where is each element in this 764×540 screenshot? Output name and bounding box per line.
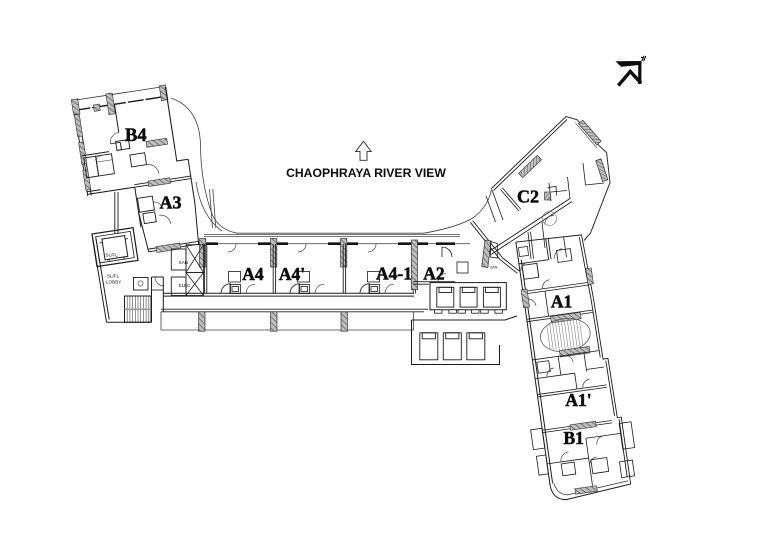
svg-text:SL/FL: SL/FL <box>107 274 120 279</box>
svg-text:ELEC: ELEC <box>179 283 192 288</box>
svg-text:SAN: SAN <box>179 260 188 265</box>
svg-text:SAN: SAN <box>490 266 498 270</box>
svg-text:A4': A4' <box>279 264 305 284</box>
svg-text:A4: A4 <box>242 264 264 284</box>
svg-text:A4-1: A4-1 <box>376 264 412 284</box>
svg-text:A2: A2 <box>423 264 444 284</box>
svg-text:SL/FL: SL/FL <box>106 253 119 258</box>
svg-text:A1': A1' <box>565 390 591 410</box>
svg-text:B4: B4 <box>125 126 147 146</box>
svg-text:A3: A3 <box>159 192 181 212</box>
svg-text:CHAOPHRAYA RIVER VIEW: CHAOPHRAYA RIVER VIEW <box>286 166 446 180</box>
svg-text:LOBBY: LOBBY <box>106 280 121 285</box>
svg-text:B1: B1 <box>563 428 583 448</box>
svg-text:A1: A1 <box>551 291 572 311</box>
svg-text:C2: C2 <box>517 187 539 207</box>
